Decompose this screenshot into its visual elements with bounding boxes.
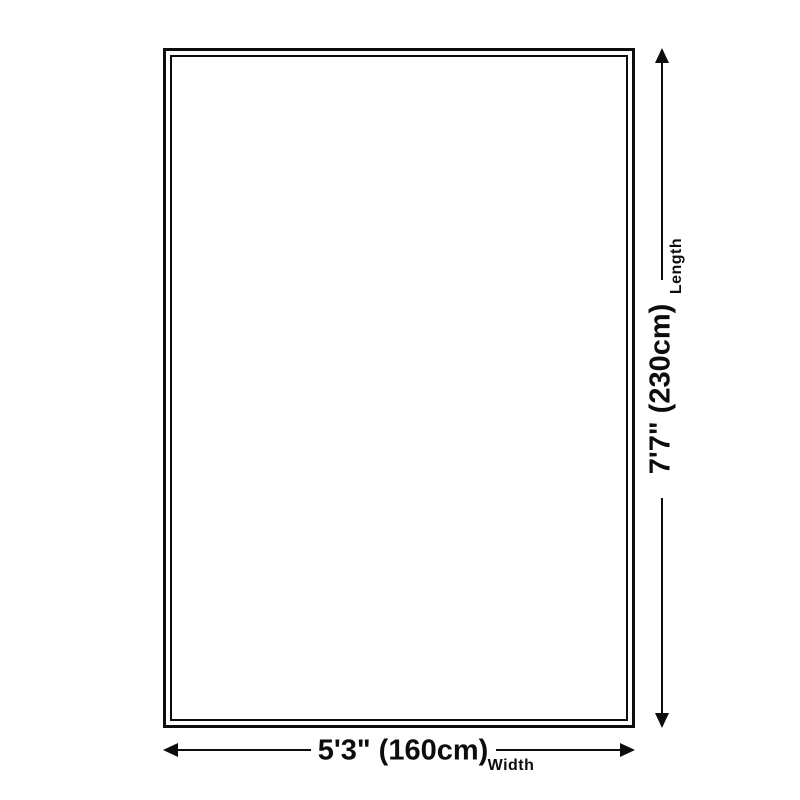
width-dimension-value: 5'3" (160cm) — [318, 737, 489, 766]
rug-outline-inner — [170, 55, 628, 721]
length-dimension-line-upper — [661, 60, 663, 280]
arrow-right-icon — [620, 743, 635, 757]
length-dimension-line-lower — [661, 498, 663, 716]
arrow-down-icon — [655, 713, 669, 728]
dimension-diagram: Length 7'7" (230cm) 5'3" (160cm) Width — [0, 0, 800, 800]
length-axis-label: Length — [669, 238, 685, 294]
length-dimension-value: 7'7" (230cm) — [647, 304, 676, 475]
width-axis-label: Width — [488, 758, 535, 774]
width-dimension-line-right — [496, 749, 622, 751]
width-dimension-line-left — [176, 749, 311, 751]
rug-outline-outer — [163, 48, 635, 728]
